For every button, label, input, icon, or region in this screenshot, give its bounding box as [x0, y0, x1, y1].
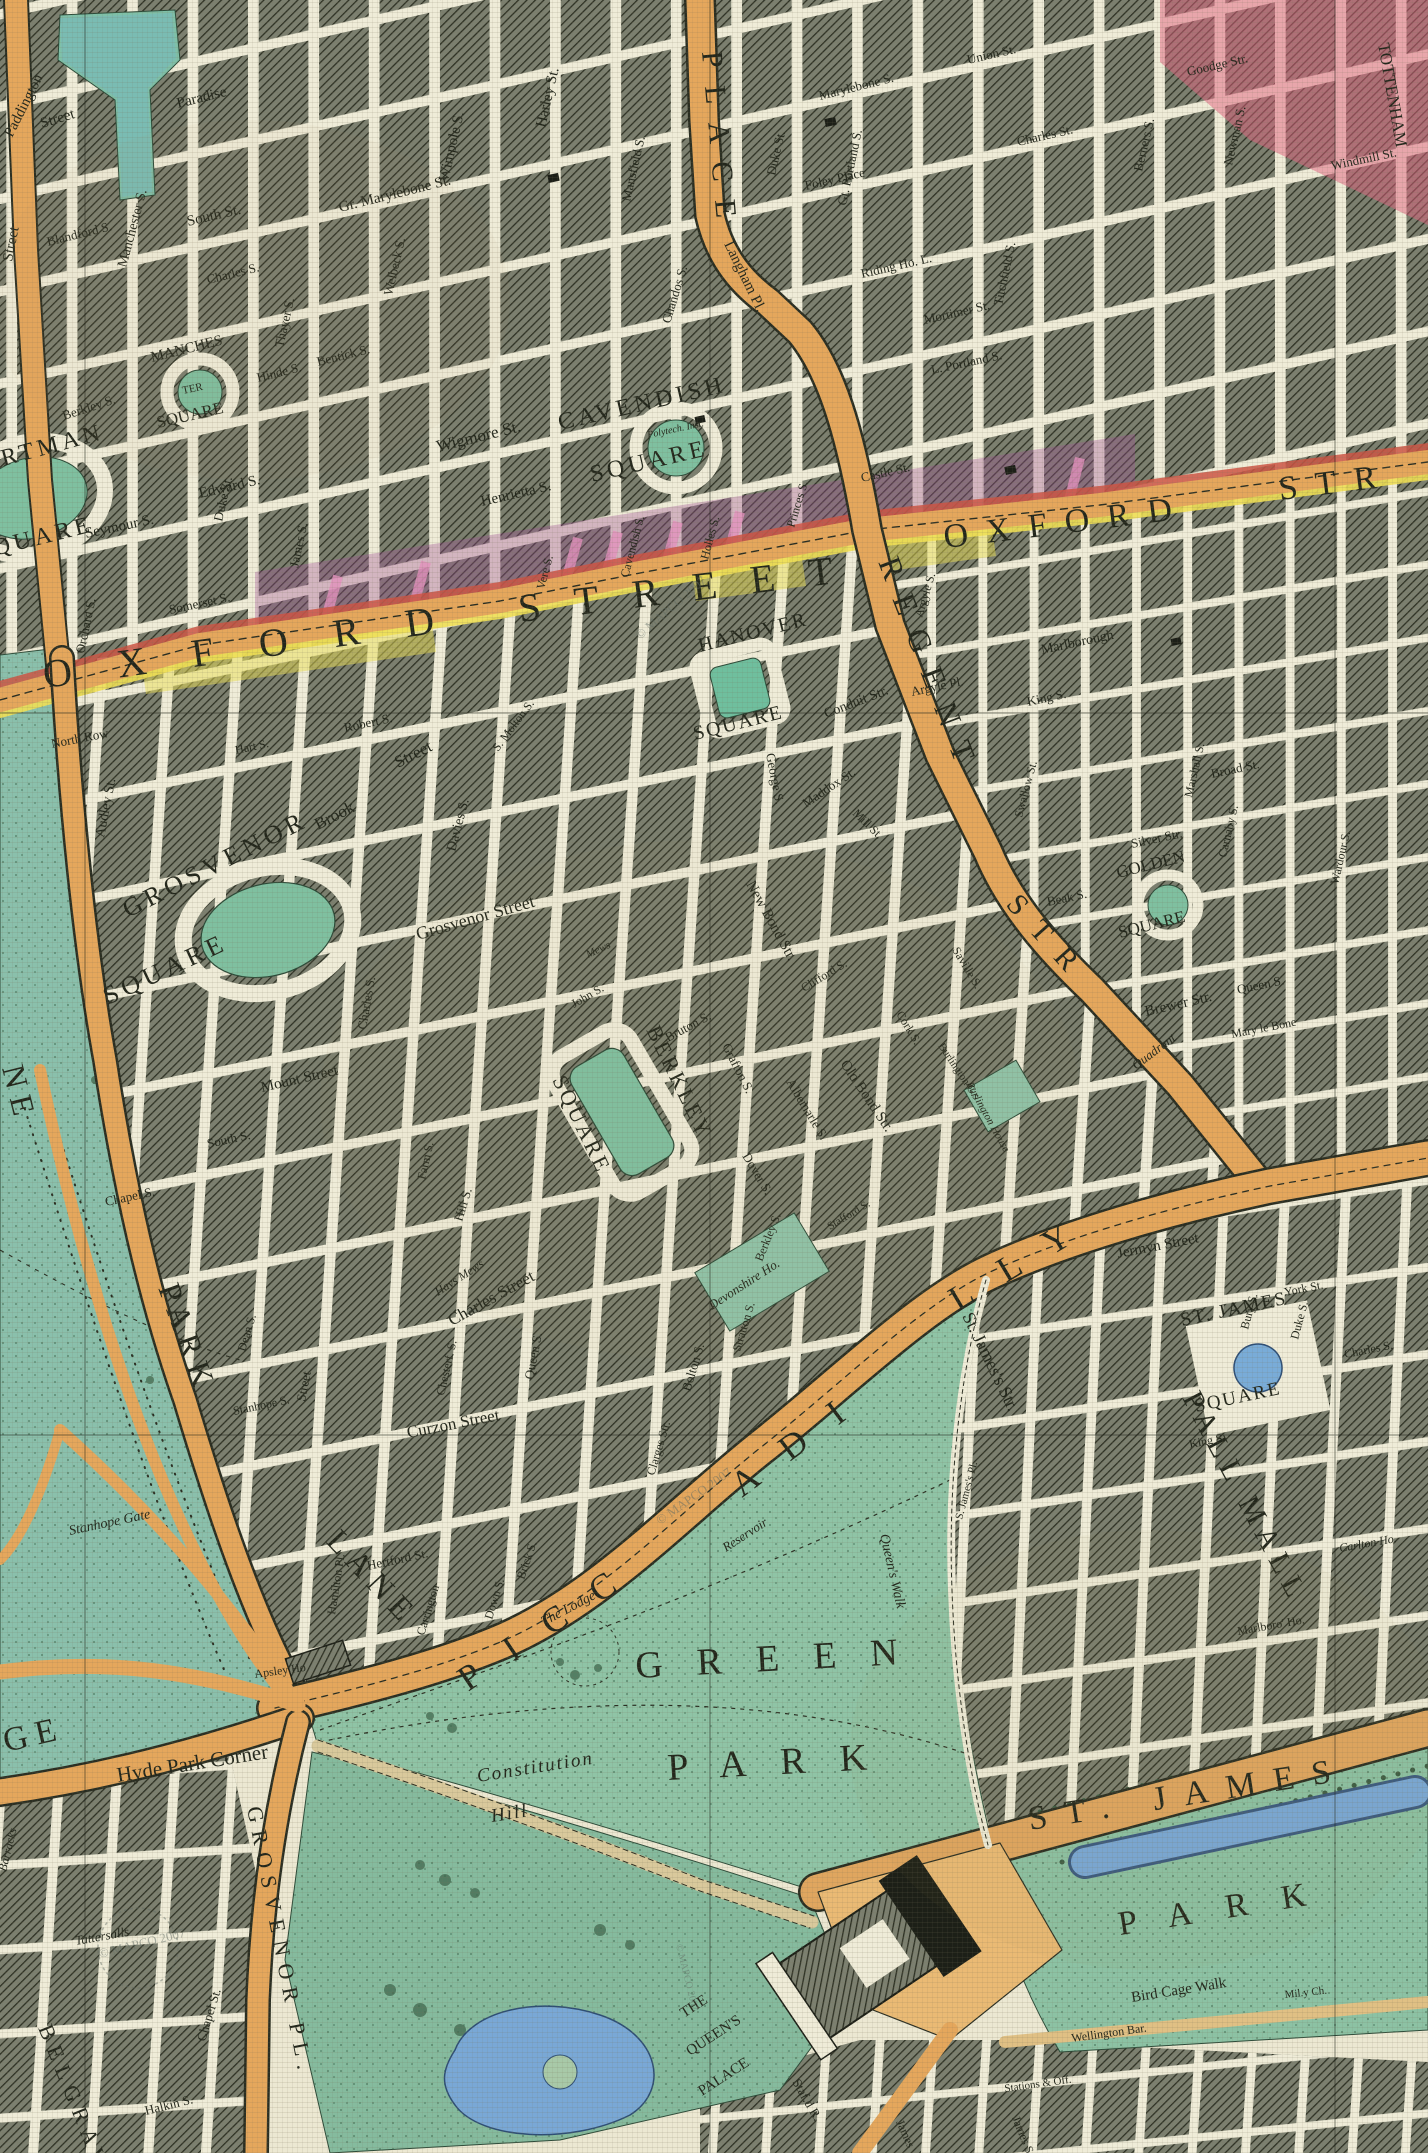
map-root: OXFORD STREET OXFORD STR REGENT STR PLAC…	[0, 0, 1428, 2153]
london-engraved-map: OXFORD STREET OXFORD STR REGENT STR PLAC…	[0, 0, 1428, 2153]
age-blotch-1	[0, 120, 510, 480]
age-blotch-3	[320, 840, 1080, 1360]
age-blotch-2	[850, 1530, 1428, 1970]
